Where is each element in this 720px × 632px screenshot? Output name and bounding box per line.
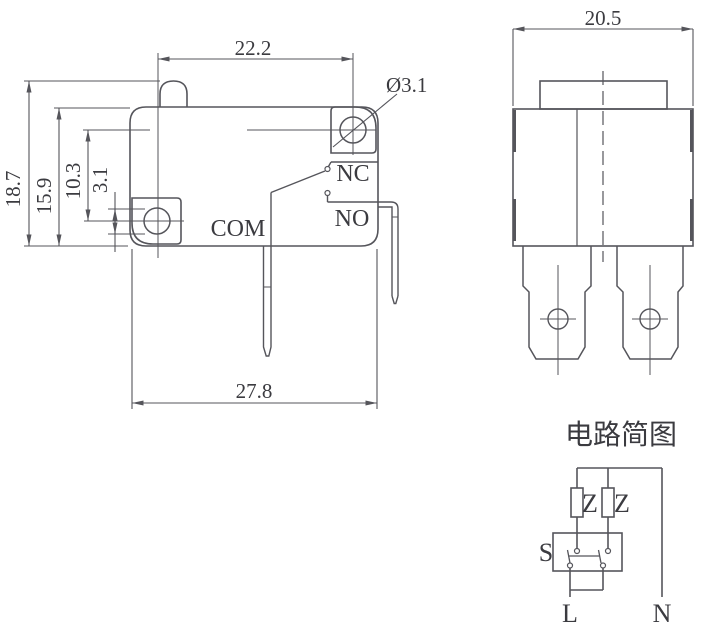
plunger-button	[160, 81, 187, 107]
dim-hole-pitch-v-label: 10.3	[61, 163, 85, 200]
com-terminal-pin	[264, 246, 272, 356]
neutral-label: N	[653, 599, 672, 628]
no-terminal-inner	[378, 207, 392, 296]
load-label-1: Z	[582, 489, 598, 518]
circuit-title: 电路简图	[565, 419, 677, 451]
drawing-svg: 22.2 18.7 15.9 10.3 3.1	[0, 0, 720, 632]
no-terminal-tip	[392, 296, 398, 304]
switch-box	[553, 533, 622, 571]
no-label: NO	[335, 206, 370, 232]
switch-label: S	[539, 538, 553, 567]
load-resistor-2	[602, 488, 614, 517]
nc-contact-dot	[325, 167, 330, 172]
side-view: 20.5	[513, 6, 693, 375]
live-label: L	[562, 599, 578, 628]
blade-terminal-left	[523, 246, 591, 359]
front-view: 22.2 18.7 15.9 10.3 3.1	[1, 36, 427, 409]
hole-dia-leader	[333, 94, 397, 147]
dim-side-width-label: 20.5	[585, 6, 622, 30]
dim-hole-size	[108, 192, 145, 252]
lever-arm	[271, 171, 325, 193]
dim-total-width-label: 27.8	[236, 379, 273, 403]
dim-total-height-label: 18.7	[1, 171, 25, 208]
dim-hole-size-label: 3.1	[88, 167, 112, 193]
dim-body-height-label: 15.9	[32, 178, 56, 215]
switch1-moving-contact	[568, 563, 573, 568]
nc-contact-link	[329, 162, 332, 167]
nc-label: NC	[336, 161, 369, 187]
circuit-diagram: 电路简图 Z Z S L N	[539, 419, 677, 628]
load-label-2: Z	[614, 489, 630, 518]
no-contact-dot	[325, 191, 330, 196]
switch2-fixed-contact	[606, 549, 611, 554]
switch2-moving-contact	[601, 563, 606, 568]
dim-hole-pitch-h-label: 22.2	[235, 36, 272, 60]
com-label: COM	[211, 216, 266, 242]
hole-dia-label: Ø3.1	[386, 73, 427, 97]
technical-drawing-page: 22.2 18.7 15.9 10.3 3.1	[0, 0, 720, 632]
switch1-fixed-contact	[575, 549, 580, 554]
